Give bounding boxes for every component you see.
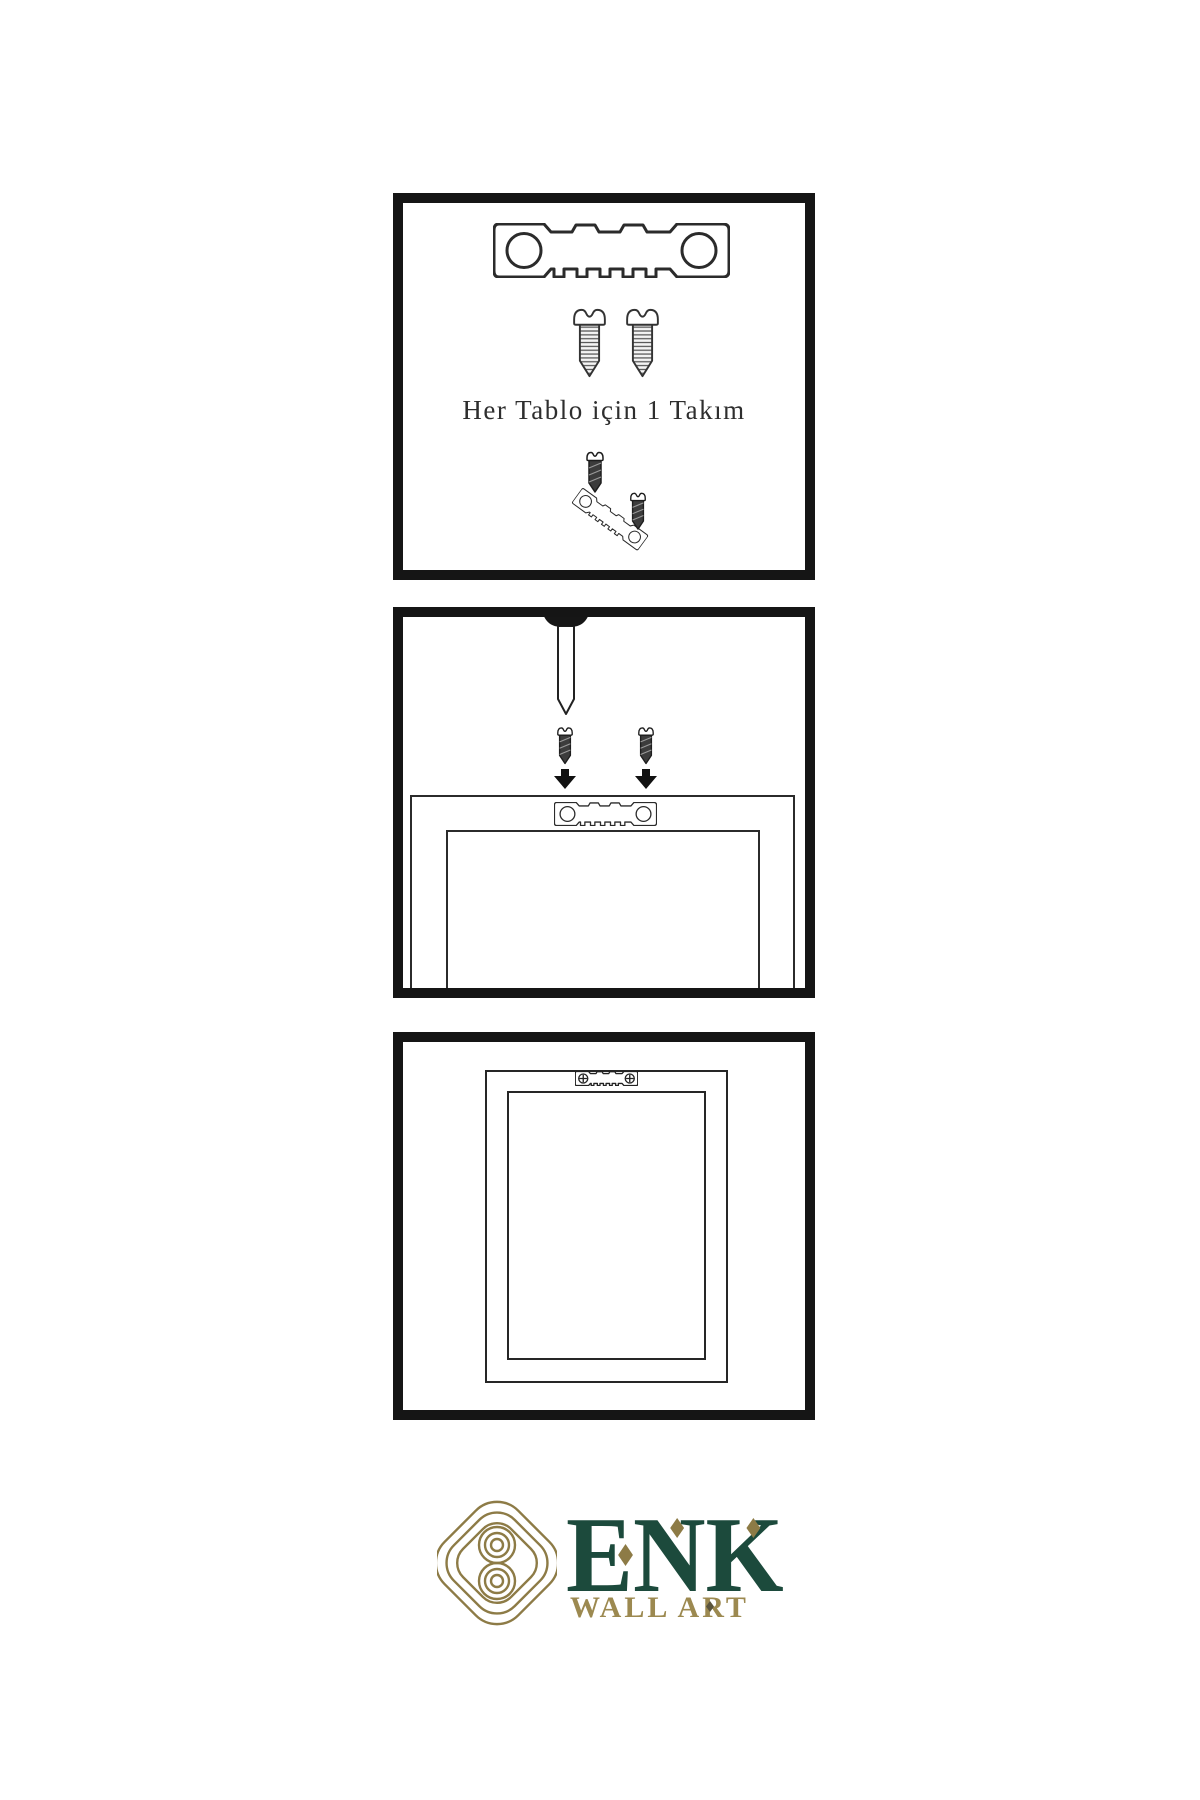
frame-back-inner-outline — [446, 830, 760, 988]
panel-hang-frame — [393, 1032, 815, 1420]
panel-caption: Her Tablo için 1 Takım — [403, 395, 805, 426]
screw-icon — [628, 492, 648, 530]
brand-subtitle: WALL ART — [570, 1593, 800, 1623]
wall-nail-icon — [543, 617, 589, 716]
panel-mount-hanger — [393, 607, 815, 998]
panel-hardware-set: Her Tablo için 1 Takım — [393, 193, 815, 580]
down-arrow-icon — [554, 769, 576, 789]
panel-mount-hanger-content — [403, 617, 805, 988]
celtic-knot-icon — [437, 1500, 557, 1627]
panel-hang-frame-content — [403, 1042, 805, 1410]
screw-icon — [584, 451, 606, 493]
frame-inner-outline — [507, 1091, 706, 1360]
sawtooth-hanger-icon — [493, 223, 730, 278]
screw-icon — [556, 725, 574, 766]
brand-wordmark: ENK — [566, 1502, 780, 1602]
frame-outline — [485, 1070, 728, 1383]
down-arrow-icon — [635, 769, 657, 789]
instruction-poster: Her Tablo için 1 Takım — [0, 0, 1200, 1800]
screw-icon — [625, 307, 660, 380]
screw-icon — [572, 307, 607, 380]
brand-subtitle-text: WALL ART — [570, 1591, 749, 1624]
screw-icon — [637, 725, 655, 766]
panel-hardware-set-content: Her Tablo için 1 Takım — [403, 203, 805, 570]
sawtooth-hanger-with-screws-icon — [575, 1071, 638, 1086]
sawtooth-hanger-icon — [554, 802, 657, 826]
